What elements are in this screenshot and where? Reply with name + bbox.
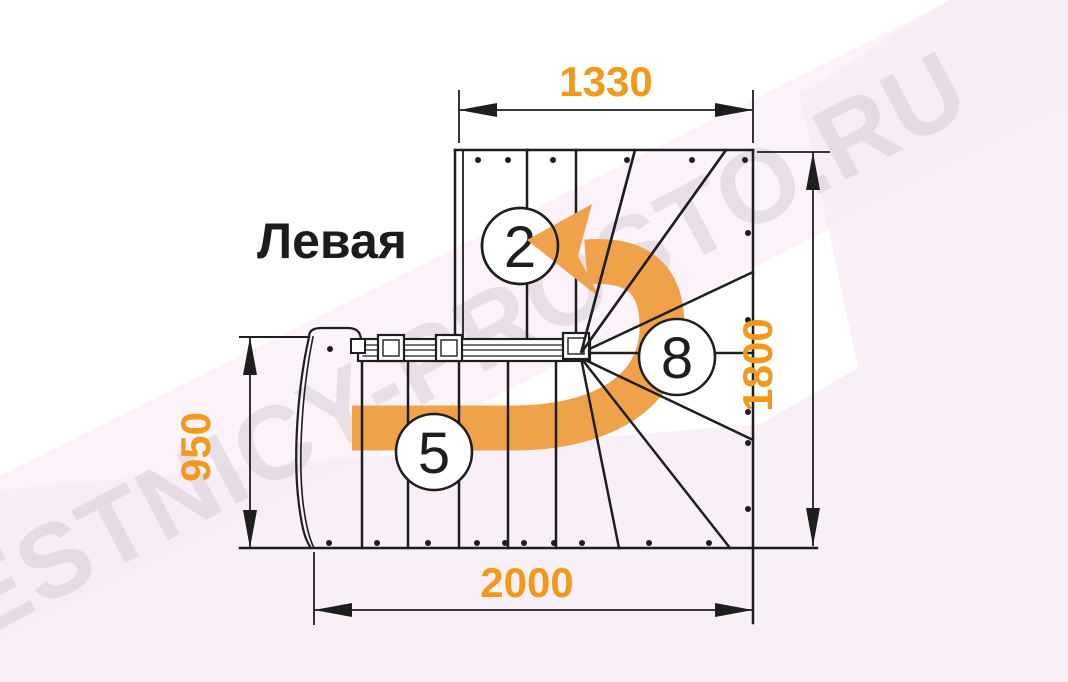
staircase-plan-canvas: LESTNICY-PROSTO.RU: [0, 0, 1068, 682]
baluster-dot: [745, 230, 751, 236]
dimension-left-label: 950: [172, 412, 219, 482]
baluster-dot: [475, 157, 481, 163]
baluster-dot: [326, 540, 332, 546]
step-number-badge-5: 5: [396, 414, 472, 490]
baluster-dot: [646, 540, 652, 546]
baluster-dot: [474, 540, 480, 546]
step-number-label-2: 2: [504, 215, 536, 280]
step-number-label-5: 5: [418, 421, 450, 486]
baluster-dot: [745, 440, 751, 446]
baluster-post: [351, 339, 365, 353]
baluster-dot: [502, 540, 508, 546]
baluster-dot: [505, 157, 511, 163]
baluster-dot: [521, 540, 527, 546]
baluster-dot: [374, 540, 380, 546]
baluster-dot: [579, 540, 585, 546]
step-number-label-8: 8: [661, 326, 693, 391]
baluster-dot: [689, 157, 695, 163]
dimension-arrowhead: [459, 103, 497, 117]
newel-post: [436, 335, 462, 361]
step-number-badge-8: 8: [639, 319, 715, 395]
baluster-dot: [551, 540, 557, 546]
newel-post: [378, 335, 404, 361]
baluster-dot: [706, 540, 712, 546]
dimension-top-label: 1330: [559, 58, 652, 105]
baluster-dot: [327, 346, 333, 352]
plan-title: Левая: [257, 213, 407, 269]
baluster-dot: [550, 157, 556, 163]
baluster-dot: [742, 157, 748, 163]
dimension-right-label: 1800: [734, 318, 781, 411]
staircase-plan-drawing: LESTNICY-PROSTO.RU: [0, 0, 1068, 682]
dimension-bottom-label: 2000: [480, 559, 573, 606]
baluster-dot: [745, 506, 751, 512]
baluster-dot: [425, 540, 431, 546]
baluster-dot: [624, 157, 630, 163]
